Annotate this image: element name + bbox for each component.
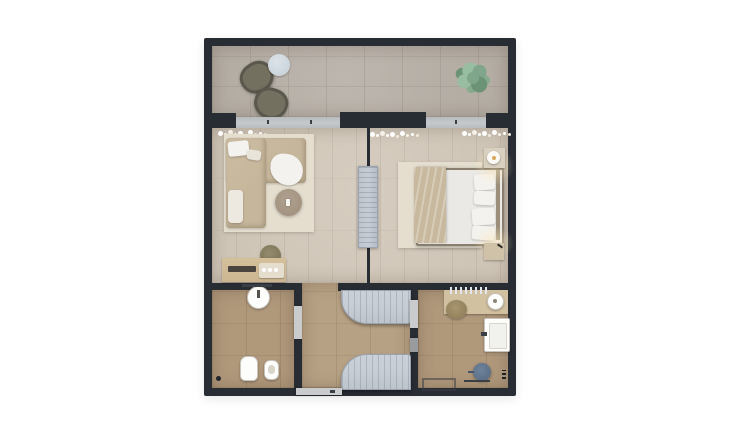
bed-pillow-2	[474, 190, 496, 205]
toilet-brush-icon	[216, 376, 221, 381]
shower-stool	[473, 363, 491, 381]
terrace-side-table	[268, 54, 290, 76]
cup-icon	[274, 268, 278, 272]
window-frame-tick	[310, 120, 312, 124]
curved-wardrobe-top	[341, 290, 411, 324]
window-frame-tick	[455, 120, 457, 124]
bidet-bowl	[268, 365, 275, 374]
nightstand-top	[484, 148, 505, 168]
terrace-floor	[212, 46, 508, 117]
vanity-basket	[446, 300, 467, 319]
bath-mat	[422, 378, 456, 391]
wall-basin	[484, 318, 510, 352]
nightstand-accessory	[497, 243, 503, 248]
wc-faucet-icon	[257, 290, 260, 298]
sofa-pillow-left	[228, 190, 243, 223]
cup-icon	[262, 268, 266, 272]
bed-pillow-3	[472, 207, 496, 225]
toilet-icon	[240, 356, 258, 381]
cup-icon	[268, 268, 272, 272]
curtain-left	[218, 131, 223, 136]
basin-faucet-icon	[481, 332, 487, 336]
stool-handle	[468, 371, 474, 373]
wall-basin-bowl	[489, 323, 507, 349]
window-frame-tick	[267, 120, 269, 124]
nightstand-bottom	[484, 243, 504, 260]
bidet-icon	[264, 360, 279, 380]
desk-serving-tray	[259, 263, 284, 278]
curtain-right	[462, 131, 467, 136]
floor-plan	[204, 38, 516, 396]
bathroom-door	[410, 300, 418, 328]
curved-wardrobe-bottom	[341, 354, 411, 390]
bed-throw-blanket	[414, 167, 446, 243]
lamp-bulb-dot	[492, 156, 496, 160]
media-partition-panel	[358, 166, 378, 248]
bathroom-floor	[418, 290, 508, 388]
door-handle-icon	[330, 390, 335, 393]
towel-ladder-icon	[450, 287, 490, 294]
main-room-floor	[212, 128, 508, 283]
wc-shelf	[242, 284, 272, 287]
wc-round-washbasin	[247, 286, 270, 309]
shower-controls-icon	[502, 370, 506, 379]
curtain-center	[370, 132, 375, 137]
basin-drain-dot	[493, 299, 497, 303]
entrance-door	[296, 388, 342, 395]
desk-dark-tray	[228, 266, 256, 272]
wc-door	[294, 306, 302, 339]
bathroom-door-sidelight	[410, 338, 418, 352]
towel-rail-icon	[464, 380, 490, 382]
vanity-round-washbasin	[487, 293, 504, 310]
wc-floor	[212, 290, 294, 388]
coffee-table-candle	[286, 199, 290, 206]
desk-console	[222, 258, 286, 282]
potted-plant-icon	[465, 70, 480, 85]
